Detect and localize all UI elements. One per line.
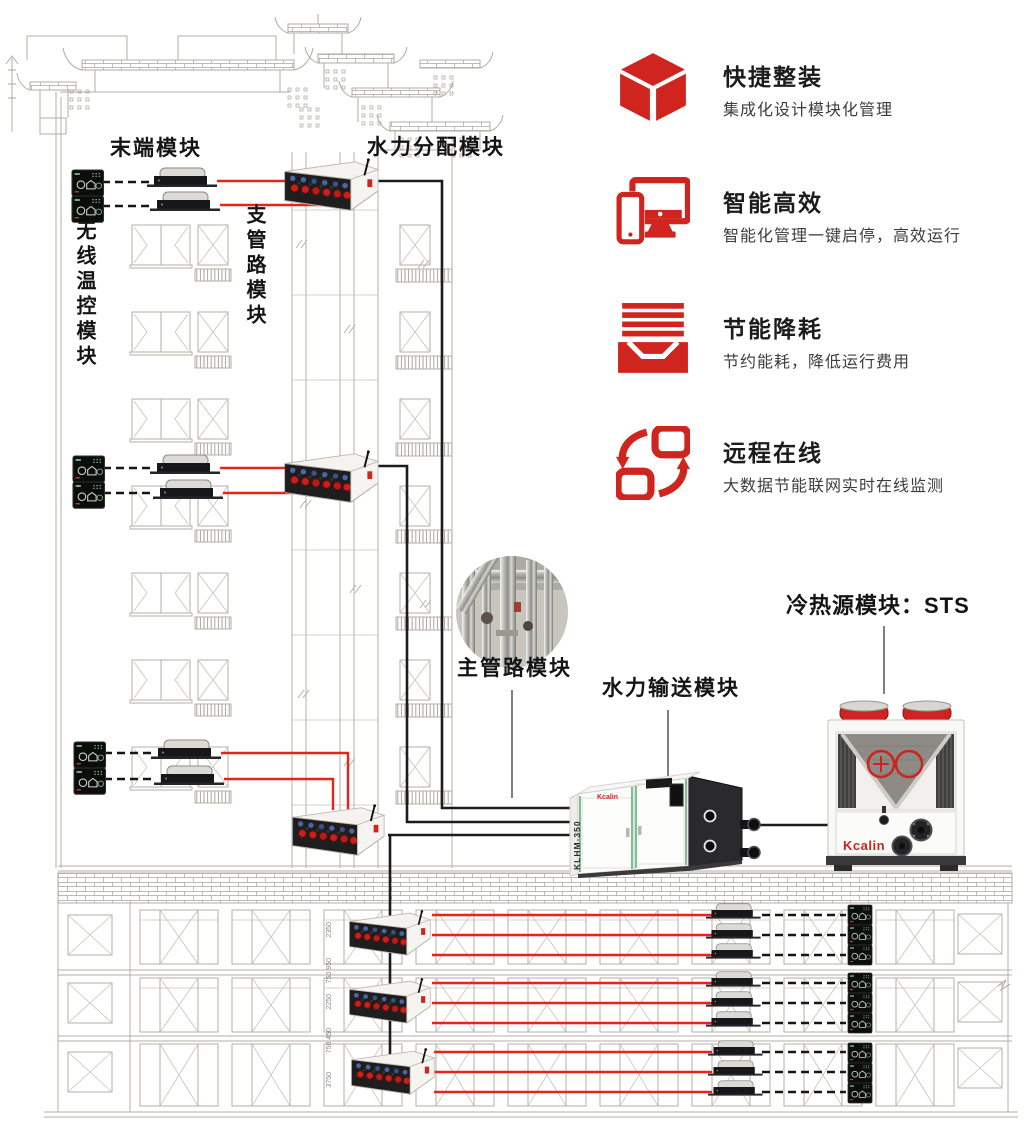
layers-tray-icon	[616, 302, 690, 376]
fan-coil-unit	[150, 455, 220, 474]
heatpump-brand-logo: Kcalin	[843, 838, 885, 853]
thermostat	[73, 482, 105, 508]
thermostat	[72, 170, 104, 196]
podium-manifolds	[350, 910, 435, 1094]
feature-subtitle: 智能化管理一键启停，高效运行	[723, 222, 961, 246]
fan-coil-unit	[147, 168, 217, 187]
shaft-glass-marks	[296, 240, 431, 844]
fan-coil-unit	[150, 192, 220, 211]
dimension-label: 2250	[326, 994, 333, 1010]
label-heat-source-module: 冷热源模块：STS	[786, 588, 970, 620]
dimension-label: 3750	[326, 1072, 333, 1088]
label-terminal-module: 末端模块	[110, 132, 202, 162]
podium	[44, 866, 1018, 1117]
podium-thermostats	[848, 905, 872, 1103]
feature-subtitle: 节约能耗，降低运行费用	[723, 348, 910, 372]
devices-icon	[616, 176, 690, 250]
feature-item-energy-saving: 节能降耗 节约能耗，降低运行费用	[596, 296, 1030, 416]
label-wireless-thermostat-module: 无线温控模块	[70, 220, 99, 370]
feature-subtitle: 集成化设计模块化管理	[723, 96, 893, 120]
label-transport-module: 水力输送模块	[602, 672, 740, 702]
feature-title: 智能高效	[723, 184, 823, 218]
distribution-manifold	[285, 158, 378, 210]
thermostat	[74, 768, 106, 794]
podium-fan-coils	[706, 904, 763, 1096]
tower-windows	[130, 225, 452, 804]
fan-coil-unit	[154, 766, 224, 785]
feature-item-smart-efficient: 智能高效 智能化管理一键启停，高效运行	[596, 170, 1030, 290]
cluster-middle	[73, 450, 378, 508]
pump-brand-logo: Kcalin	[597, 794, 618, 801]
dimension-label: 750 950	[326, 958, 333, 983]
dimension-label: 750 450	[326, 1028, 333, 1053]
label-branch-pipe-module: 支管路模块	[240, 204, 269, 329]
feature-title: 远程在线	[723, 434, 823, 468]
system-diagram: 末端模块 水力分配模块 支管路模块 无线温控模块 主管路模块 水力输送模块 冷热…	[0, 0, 1030, 1126]
label-distribution-module: 水力分配模块	[367, 131, 505, 161]
label-main-pipe-module: 主管路模块	[452, 652, 577, 682]
distribution-manifold	[285, 450, 378, 502]
feature-item-remote-online: 远程在线 大数据节能联网实时在线监测	[596, 420, 1030, 540]
pump-model-text: KLHM-350	[572, 800, 582, 870]
dimension-label: 2350	[326, 922, 333, 938]
feature-list: 快捷整装 集成化设计模块化管理 智能高效 智能化管理一键启停，高效运行	[596, 0, 1030, 560]
podium-windows	[68, 910, 1002, 1106]
thermostat	[73, 456, 105, 482]
feature-item-quick-assembly: 快捷整装 集成化设计模块化管理	[596, 44, 1030, 164]
cube-icon	[616, 50, 690, 124]
thermostat	[74, 742, 106, 768]
sync-arrows-icon	[616, 426, 690, 500]
cluster-lower	[74, 740, 384, 855]
feature-title: 快捷整装	[723, 58, 823, 92]
cluster-top	[72, 158, 378, 222]
feature-title: 节能降耗	[723, 310, 823, 344]
fan-coil-unit	[153, 480, 223, 499]
feature-subtitle: 大数据节能联网实时在线监测	[723, 472, 944, 496]
thermostat	[72, 196, 104, 222]
distribution-manifold	[293, 804, 384, 855]
hydraulic-transport-unit	[570, 772, 760, 878]
fan-coil-unit	[151, 740, 221, 759]
